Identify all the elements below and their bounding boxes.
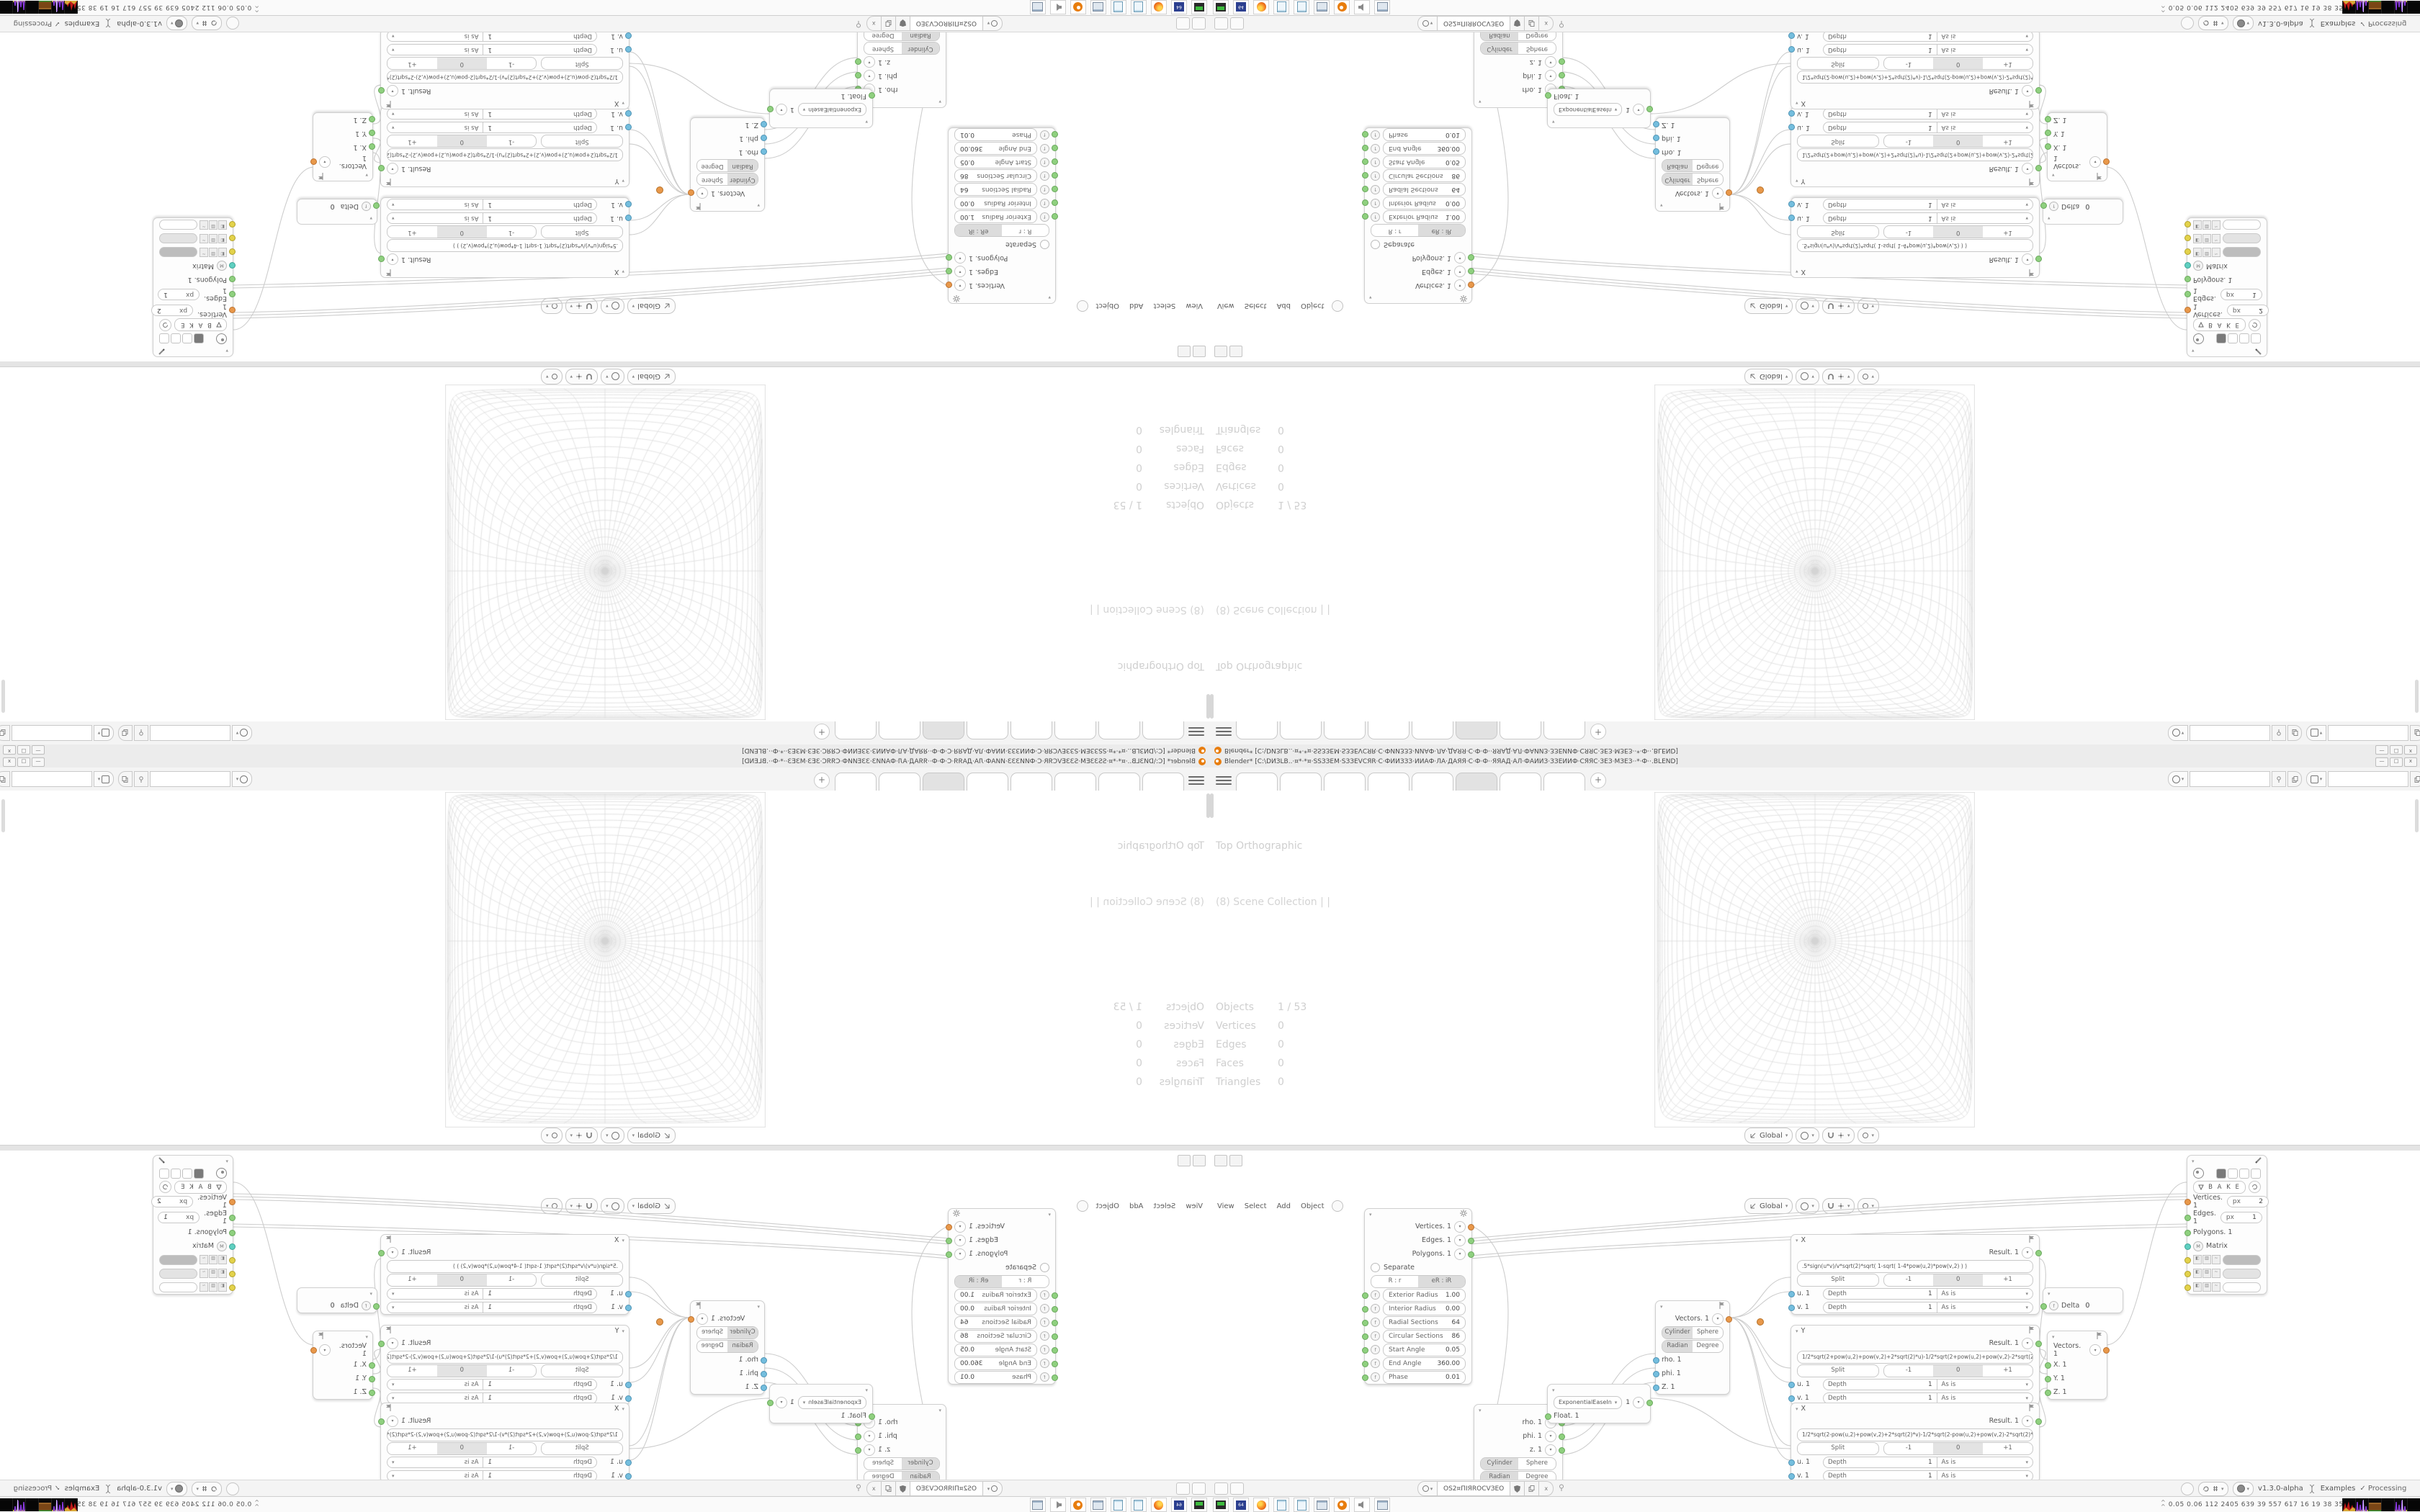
depth-row[interactable]: v. 1Depth1As is▾ xyxy=(1791,32,2039,43)
depth-row[interactable]: u. 1Depth1As is▾ xyxy=(381,1377,629,1391)
node-header[interactable]: ▾ xyxy=(949,1209,1055,1220)
node-header[interactable]: ▾X xyxy=(1791,266,2039,277)
number-field[interactable]: Circular Sections86 xyxy=(954,170,1037,183)
socket-green[interactable] xyxy=(2040,203,2047,210)
split-row[interactable]: Split-10+1 xyxy=(1791,225,2039,239)
pin-icon[interactable] xyxy=(1558,1484,1565,1493)
gizmo-dropdown[interactable]: ▾ xyxy=(1796,1128,1819,1143)
viewport-area[interactable]: Top Orthographic (8) Scene Collection | … xyxy=(1210,367,2420,721)
menu-item-view[interactable]: View xyxy=(1217,1202,1234,1210)
segmented-row[interactable]: CylinderSphere xyxy=(691,173,764,186)
socket-blue[interactable] xyxy=(1653,149,1659,156)
notepad-icon[interactable] xyxy=(1273,1498,1289,1512)
socket-orange[interactable] xyxy=(229,307,236,313)
segmented-row[interactable]: RadianDegree xyxy=(691,159,764,173)
computer-icon[interactable] xyxy=(1191,0,1207,14)
delta-node[interactable]: ▾fDelta0 xyxy=(2043,199,2123,225)
nodetree-icon[interactable]: ▾ xyxy=(1417,1481,1438,1496)
proportional-dropdown[interactable]: ▾ xyxy=(1857,298,1879,314)
color-swatch-row[interactable]: ◧▥~ xyxy=(153,246,233,259)
menu-item-object[interactable]: Object xyxy=(1095,1202,1119,1210)
id-name-field[interactable] xyxy=(2190,725,2270,741)
torus-node[interactable]: ▾Vertices. 1▾Edges. 1▾Polygons. 1▾Separa… xyxy=(948,1208,1056,1385)
notepad-icon[interactable] xyxy=(1273,0,1289,14)
socket-orange[interactable] xyxy=(1468,282,1474,289)
formula-y1-node[interactable]: ▾YResult. 1▾1/2*sqrt(2+pow(u,2)+pow(v,2)… xyxy=(1791,107,2040,187)
socket-green[interactable] xyxy=(378,1250,385,1256)
socket-yellow[interactable] xyxy=(229,249,236,256)
split-row[interactable]: Split-10+1 xyxy=(381,225,629,239)
socket-green[interactable] xyxy=(369,117,375,123)
socket-yellow[interactable] xyxy=(2184,235,2191,242)
socket-green[interactable] xyxy=(378,256,385,263)
easing-node[interactable]: ▾ExponentialEaseIn▾1▾Float. 1 xyxy=(1547,1384,1651,1423)
socket-green[interactable] xyxy=(373,1303,380,1310)
notepad-icon[interactable] xyxy=(1111,1498,1126,1512)
formula-y1-node[interactable]: ▾YResult. 1▾1/2*sqrt(2+pow(u,2)+pow(v,2)… xyxy=(380,1325,629,1405)
socket-orange[interactable] xyxy=(229,1199,236,1205)
notepad-icon[interactable] xyxy=(1294,1498,1309,1512)
computer-icon[interactable] xyxy=(1213,0,1229,14)
combine-node[interactable]: ▾Vectors. 1▾X. 1Y. 1Z. 1 xyxy=(313,112,373,181)
socket-green[interactable] xyxy=(378,166,385,172)
node-editor-area[interactable]: ViewSelectAddObject Global▾▾▾▾ ▾Vertices… xyxy=(1210,32,2420,361)
socket-blue[interactable] xyxy=(625,1459,632,1466)
formula-y1-node[interactable]: ▾YResult. 1▾1/2*sqrt(2+pow(u,2)+pow(v,2)… xyxy=(1791,1325,2040,1405)
color-swatch-row[interactable]: ◧▥~ xyxy=(153,218,233,232)
unlink-button[interactable]: x xyxy=(866,16,881,31)
segmented-row[interactable]: CylinderSphere xyxy=(1656,173,1729,186)
socket-blue[interactable] xyxy=(1788,202,1795,208)
socket-green[interactable] xyxy=(1052,132,1058,138)
socket-blue[interactable] xyxy=(625,1473,632,1480)
formula-x2-node[interactable]: ▾XResult. 1▾1/2*sqrt(2-pow(u,2)+pow(v,2)… xyxy=(380,1403,629,1480)
node-header[interactable]: ▾ xyxy=(949,292,1055,303)
node-header[interactable]: ▾ xyxy=(1548,117,1650,127)
proportional-dropdown[interactable]: ▾ xyxy=(541,1128,563,1143)
unlink-button[interactable]: x xyxy=(1539,16,1554,31)
gizmo-dropdown[interactable]: ▾ xyxy=(1796,298,1819,314)
unlink-button[interactable]: x xyxy=(1539,1481,1554,1496)
hamburger-icon[interactable] xyxy=(1188,773,1204,788)
depth-row[interactable]: v. 1Depth1As is▾ xyxy=(381,1300,629,1314)
easing-row[interactable]: ExponentialEaseIn▾1▾ xyxy=(770,1395,872,1409)
pin-icon[interactable] xyxy=(2272,771,2286,787)
workspace-tab-2[interactable] xyxy=(1280,721,1322,739)
socket-yellow[interactable] xyxy=(229,222,236,228)
snap-magnet-dropdown[interactable]: ▾ xyxy=(565,1128,599,1143)
checkbox-row[interactable]: Separate xyxy=(949,238,1055,251)
workspace-tab-3[interactable] xyxy=(1054,773,1096,791)
socket-green[interactable] xyxy=(1052,1333,1058,1340)
socket-orange[interactable] xyxy=(1468,1224,1474,1230)
close-button[interactable]: x xyxy=(2404,746,2417,755)
unlink-button[interactable]: x xyxy=(866,1481,881,1496)
snap-magnet-dropdown[interactable]: ▾ xyxy=(1822,369,1855,384)
snap-magnet-dropdown[interactable]: ▾ xyxy=(565,1198,599,1214)
nodetree-icon[interactable]: ▾ xyxy=(982,1481,1003,1496)
window-icon[interactable] xyxy=(1030,0,1046,14)
socket-green[interactable] xyxy=(1362,1347,1368,1354)
socket-blue[interactable] xyxy=(1653,135,1659,142)
footer-view-toggles[interactable] xyxy=(1176,1482,1206,1495)
socket-orange[interactable] xyxy=(688,1316,694,1323)
socket-orange[interactable] xyxy=(1726,190,1732,197)
menu-item-object[interactable]: Object xyxy=(1301,302,1325,310)
id-name-field[interactable] xyxy=(12,725,92,741)
socket-green[interactable] xyxy=(1362,214,1368,220)
orientation-dropdown[interactable]: Global▾ xyxy=(627,1128,676,1143)
number-field[interactable]: End Angle360.00 xyxy=(954,1357,1037,1370)
speaker-icon[interactable] xyxy=(1050,1498,1066,1512)
checkbox-row[interactable]: Separate xyxy=(1365,1261,1471,1274)
editor-mini-toggles[interactable] xyxy=(1214,1155,1242,1166)
viewport-scrollbar[interactable] xyxy=(2415,680,2419,713)
image-icon[interactable]: ▾ xyxy=(94,725,114,741)
socket-blue[interactable] xyxy=(1653,1385,1659,1391)
orientation-dropdown[interactable]: Global▾ xyxy=(1744,369,1793,384)
minimize-button[interactable]: — xyxy=(32,746,45,755)
workspace-tab-6[interactable] xyxy=(1456,773,1497,791)
depth-row[interactable]: v. 1Depth1As is▾ xyxy=(1791,1300,2039,1314)
status-circle-icon[interactable] xyxy=(226,1482,239,1495)
gizmo-dropdown[interactable]: ▾ xyxy=(601,1198,624,1214)
display-toggles-row[interactable] xyxy=(153,1166,233,1180)
examples-menu[interactable]: Examples xyxy=(2321,1485,2356,1493)
image-icon[interactable]: ▾ xyxy=(2306,771,2326,787)
number-field[interactable]: Start Angle0.05 xyxy=(1383,156,1466,169)
formula-x2-node[interactable]: ▾XResult. 1▾1/2*sqrt(2-pow(u,2)+pow(v,2)… xyxy=(1791,32,2040,109)
workspace-tab-6[interactable] xyxy=(923,773,964,791)
shield-icon[interactable] xyxy=(895,16,910,31)
number-field[interactable]: Phase0.01 xyxy=(954,1371,1037,1384)
socket-green[interactable] xyxy=(1362,186,1368,193)
add-tab-button[interactable]: + xyxy=(1590,773,1606,788)
firefox-icon[interactable] xyxy=(1253,0,1269,14)
socket-blue[interactable] xyxy=(625,33,632,40)
workspace-tab-4[interactable] xyxy=(1010,773,1052,791)
node-header[interactable]: ▾ xyxy=(691,200,764,211)
proportional-dropdown[interactable]: ▾ xyxy=(1857,1128,1879,1143)
floppy64-icon[interactable]: 64 xyxy=(1233,0,1249,14)
socket-cyan[interactable] xyxy=(229,263,236,269)
depth-row[interactable]: u. 1Depth1As is▾ xyxy=(1791,1377,2039,1391)
node-header[interactable]: ▾X xyxy=(381,1403,629,1414)
vector-out-node[interactable]: ▾Vectors. 1▾CylinderSphereRadianDegreerh… xyxy=(1655,1300,1730,1395)
color-swatch-row[interactable]: ◧▥~ xyxy=(153,1266,233,1280)
workspace-tab-8[interactable] xyxy=(835,721,877,739)
socket-green[interactable] xyxy=(2035,1250,2042,1256)
socket-blue[interactable] xyxy=(1788,1395,1795,1402)
number-field[interactable]: Radial Sections64 xyxy=(1383,1316,1466,1329)
processing-checkbox[interactable]: ✓ Processing xyxy=(2359,1485,2406,1493)
depth-row[interactable]: v. 1Depth1As is▾ xyxy=(1791,1469,2039,1480)
maximize-button[interactable]: □ xyxy=(2390,746,2403,755)
node-editor-area[interactable]: ViewSelectAddObject Global▾▾▾▾ ▾Vertices… xyxy=(0,32,1210,361)
socket-green[interactable] xyxy=(1052,1292,1058,1299)
node-header[interactable]: ▾X xyxy=(1791,98,2039,109)
socket-green[interactable] xyxy=(378,1341,385,1347)
blender-icon[interactable] xyxy=(1334,0,1350,14)
socket-green[interactable] xyxy=(229,291,236,297)
socket-green[interactable] xyxy=(1052,214,1058,220)
segmented-row[interactable]: RadianDegree xyxy=(1656,1339,1729,1353)
number-field[interactable]: End Angle360.00 xyxy=(1383,143,1466,156)
segmented-row[interactable]: RadianDegree xyxy=(858,1470,946,1480)
depth-row[interactable]: v. 1Depth1As is▾ xyxy=(381,198,629,212)
computer-icon[interactable] xyxy=(1213,1498,1229,1512)
workspace-tab-5[interactable] xyxy=(967,773,1008,791)
socket-cyan[interactable] xyxy=(2184,1243,2191,1250)
socket-orange[interactable] xyxy=(2103,158,2110,165)
processing-checkbox[interactable]: ✓ Processing xyxy=(2359,19,2406,27)
socket-yellow[interactable] xyxy=(229,1284,236,1291)
color-swatch-row[interactable]: ◧▥~ xyxy=(153,1253,233,1266)
reroute-dot[interactable] xyxy=(1757,1318,1764,1326)
number-field[interactable]: Phase0.01 xyxy=(954,129,1037,142)
depth-row[interactable]: u. 1Depth1As is▾ xyxy=(381,43,629,57)
window-icon[interactable] xyxy=(1090,0,1106,14)
blender-icon[interactable] xyxy=(1070,1498,1086,1512)
socket-blue[interactable] xyxy=(761,135,767,142)
menu-item-select[interactable]: Select xyxy=(1153,302,1175,310)
number-field[interactable]: Radial Sections64 xyxy=(954,1316,1037,1329)
workspace-tab-4[interactable] xyxy=(1368,721,1410,739)
segmented-row[interactable]: RadianDegree xyxy=(1474,1470,1562,1480)
segmented-row[interactable]: R : reR : iR xyxy=(949,1274,1055,1288)
combine-node[interactable]: ▾Vectors. 1▾X. 1Y. 1Z. 1 xyxy=(313,1331,373,1400)
socket-blue[interactable] xyxy=(761,1371,767,1377)
pin-icon[interactable] xyxy=(1558,19,1565,28)
nodetree-name-field[interactable]: OS2¤ПIЯROCVЗEO xyxy=(1438,16,1510,31)
reroute-dot[interactable] xyxy=(656,186,663,194)
number-field[interactable]: End Angle360.00 xyxy=(954,143,1037,156)
socket-green[interactable] xyxy=(1362,173,1368,179)
area-handle[interactable] xyxy=(1206,793,1210,818)
socket-cyan[interactable] xyxy=(229,1243,236,1250)
node-header[interactable]: ▾X xyxy=(381,1235,629,1246)
window-icon[interactable] xyxy=(1090,1498,1106,1512)
hamburger-icon[interactable] xyxy=(1188,724,1204,739)
socket-green[interactable] xyxy=(946,1238,952,1244)
socket-blue[interactable] xyxy=(1788,1473,1795,1480)
socket-yellow[interactable] xyxy=(229,235,236,242)
socket-green[interactable] xyxy=(1362,132,1368,138)
area-handle[interactable] xyxy=(1210,793,1214,818)
socket-green[interactable] xyxy=(946,269,952,275)
menu-item-view[interactable]: View xyxy=(1217,302,1234,310)
node-header[interactable]: ▾ xyxy=(2043,1288,2123,1299)
number-field[interactable]: Exterior Radius1.00 xyxy=(1383,1289,1466,1302)
socket-green[interactable] xyxy=(2045,1390,2051,1396)
segmented-row[interactable]: CylinderSphere xyxy=(691,1326,764,1339)
theme-group[interactable]: ▾ xyxy=(166,17,188,31)
bake-row[interactable]: B A K E xyxy=(2187,318,2267,332)
socket-blue[interactable] xyxy=(761,149,767,156)
hamburger-icon[interactable] xyxy=(1216,724,1232,739)
easing-node[interactable]: ▾ExponentialEaseIn▾1▾Float. 1 xyxy=(769,1384,873,1423)
formula-row[interactable]: 1/2*sqrt(2-pow(u,2)+pow(v,2)+2*sqrt(2)*v… xyxy=(381,1428,629,1441)
node-header[interactable]: ▾ xyxy=(2043,213,2123,224)
number-field[interactable]: Circular Sections86 xyxy=(1383,1330,1466,1343)
socket-green[interactable] xyxy=(1052,1320,1058,1326)
node-header[interactable]: ▾X xyxy=(381,266,629,277)
socket-green[interactable] xyxy=(2040,1303,2047,1310)
node-header[interactable]: ▾ xyxy=(1548,1385,1650,1395)
snap-magnet-dropdown[interactable]: ▾ xyxy=(1822,1198,1855,1214)
socket-blue[interactable] xyxy=(1653,122,1659,128)
workspace-tab-5[interactable] xyxy=(967,721,1008,739)
theme-group[interactable]: ▾ xyxy=(166,1482,188,1496)
node-header[interactable]: ▾ xyxy=(770,117,872,127)
copy-icon[interactable] xyxy=(881,16,895,31)
number-field[interactable]: Radial Sections64 xyxy=(1383,184,1466,197)
bake-row[interactable]: B A K E xyxy=(153,318,233,332)
orientation-dropdown[interactable]: Global▾ xyxy=(1744,1198,1793,1214)
socket-blue[interactable] xyxy=(625,47,632,53)
node-editor-area[interactable]: ViewSelectAddObject Global▾▾▾▾ ▾Vertices… xyxy=(0,1151,1210,1480)
socket-green[interactable] xyxy=(2035,88,2042,94)
update-group[interactable]: ▾ xyxy=(192,1482,222,1496)
tray-expand-icon[interactable]: ^^ xyxy=(2161,3,2166,12)
socket-green[interactable] xyxy=(369,130,375,137)
socket-green[interactable] xyxy=(369,144,375,150)
workspace-tab-1[interactable] xyxy=(1142,721,1184,739)
reroute-dot[interactable] xyxy=(1757,186,1764,194)
maximize-button[interactable]: □ xyxy=(17,757,30,767)
copy-icon[interactable] xyxy=(2287,771,2302,787)
copy-icon[interactable] xyxy=(1525,16,1539,31)
socket-green[interactable] xyxy=(229,1230,236,1236)
nodetree-name-field[interactable]: OS2¤ПIЯROCVЗEO xyxy=(910,1481,982,1496)
socket-green[interactable] xyxy=(1052,1347,1058,1354)
socket-green[interactable] xyxy=(855,1447,861,1454)
easing-node[interactable]: ▾ExponentialEaseIn▾1▾Float. 1 xyxy=(769,89,873,128)
socket-green[interactable] xyxy=(1545,1413,1551,1420)
close-button[interactable]: x xyxy=(3,746,16,755)
pin-icon[interactable] xyxy=(855,19,862,28)
split-row[interactable]: Split-10+1 xyxy=(381,1273,629,1287)
formula-row[interactable]: 1/2*sqrt(2+pow(u,2)+pow(v,2)+2*sqrt(2)*u… xyxy=(381,1350,629,1364)
workspace-tab-7[interactable] xyxy=(1500,773,1541,791)
split-row[interactable]: Split-10+1 xyxy=(1791,1273,2039,1287)
socket-yellow[interactable] xyxy=(2184,249,2191,256)
node-header[interactable]: ▾ xyxy=(1656,1301,1729,1312)
menu-item-select[interactable]: Select xyxy=(1153,1202,1175,1210)
add-tab-button[interactable]: + xyxy=(1590,724,1606,739)
orientation-dropdown[interactable]: Global▾ xyxy=(1744,298,1793,314)
menu-item-select[interactable]: Select xyxy=(1245,1202,1267,1210)
socket-green[interactable] xyxy=(1468,269,1474,275)
orientation-dropdown[interactable]: Global▾ xyxy=(627,1198,676,1214)
number-field[interactable]: Interior Radius0.00 xyxy=(954,1302,1037,1315)
segmented-row[interactable]: R : reR : iR xyxy=(949,224,1055,238)
pin-icon[interactable] xyxy=(134,771,148,787)
workspace-tab-1[interactable] xyxy=(1142,773,1184,791)
workspace-tab-4[interactable] xyxy=(1368,773,1410,791)
socket-green[interactable] xyxy=(2035,166,2042,172)
floppy64-icon[interactable]: 64 xyxy=(1233,1498,1249,1512)
socket-green[interactable] xyxy=(1646,107,1653,113)
mode-circle-icon[interactable] xyxy=(1332,1200,1343,1212)
easing-row[interactable]: ExponentialEaseIn▾1▾ xyxy=(770,103,872,117)
gizmo-dropdown[interactable]: ▾ xyxy=(1796,1198,1819,1214)
socket-yellow[interactable] xyxy=(2184,1257,2191,1264)
formula-x2-node[interactable]: ▾XResult. 1▾1/2*sqrt(2-pow(u,2)+pow(v,2)… xyxy=(1791,1403,2040,1480)
viewer-node[interactable]: ▾B A K EVertices. 1px2Edges. 1px1Polygon… xyxy=(2187,1155,2267,1295)
node-header[interactable]: ▾X xyxy=(1791,1235,2039,1246)
workspace-tab-6[interactable] xyxy=(1456,721,1497,739)
formula-row[interactable]: 1/2*sqrt(2-pow(u,2)+pow(v,2)+2*sqrt(2)*v… xyxy=(1791,1428,2039,1441)
add-tab-button[interactable]: + xyxy=(814,724,830,739)
workspace-tab-8[interactable] xyxy=(1543,773,1585,791)
footer-view-toggles[interactable] xyxy=(1214,1482,1244,1495)
close-button[interactable]: x xyxy=(3,757,16,767)
shield-icon[interactable] xyxy=(1510,16,1525,31)
workspace-tab-2[interactable] xyxy=(1098,773,1140,791)
depth-row[interactable]: u. 1Depth1As is▾ xyxy=(381,1455,629,1469)
formula-row[interactable]: .5*sign(u*v)/v*sqrt(2)*sqrt( 1-sqrt( 1-4… xyxy=(381,239,629,253)
menu-item-add[interactable]: Add xyxy=(1129,1202,1143,1210)
id-name-field[interactable] xyxy=(12,771,92,787)
node-header[interactable]: ▾ xyxy=(313,1331,372,1342)
socket-green[interactable] xyxy=(1559,73,1565,79)
socket-green[interactable] xyxy=(229,1215,236,1221)
orientation-dropdown[interactable]: Global▾ xyxy=(1744,1128,1793,1143)
socket-green[interactable] xyxy=(869,1413,875,1420)
socket-green[interactable] xyxy=(2035,1341,2042,1347)
socket-blue[interactable] xyxy=(625,215,632,222)
socket-blue[interactable] xyxy=(1788,111,1795,117)
nodetree-icon[interactable]: ▾ xyxy=(1417,16,1438,31)
socket-blue[interactable] xyxy=(625,1291,632,1297)
pin-icon[interactable] xyxy=(855,1484,862,1493)
segmented-row[interactable]: RadianDegree xyxy=(1656,159,1729,173)
area-handle[interactable] xyxy=(1210,694,1214,719)
socket-green[interactable] xyxy=(2045,1362,2051,1369)
area-handle[interactable] xyxy=(1206,694,1210,719)
socket-green[interactable] xyxy=(2045,130,2051,137)
copy-icon[interactable] xyxy=(0,771,10,787)
socket-green[interactable] xyxy=(1362,145,1368,152)
number-field[interactable]: Exterior Radius1.00 xyxy=(954,211,1037,224)
footer-view-toggles[interactable] xyxy=(1176,17,1206,30)
window-icon[interactable] xyxy=(1374,0,1390,14)
socket-yellow[interactable] xyxy=(229,1271,236,1277)
number-field[interactable]: Exterior Radius1.00 xyxy=(954,1289,1037,1302)
status-circle-icon[interactable] xyxy=(2181,1482,2194,1495)
socket-green[interactable] xyxy=(1362,1333,1368,1340)
editor-mini-toggles[interactable] xyxy=(1214,346,1242,357)
close-button[interactable]: x xyxy=(2404,757,2417,767)
socket-orange[interactable] xyxy=(946,1224,952,1230)
maximize-button[interactable]: □ xyxy=(17,746,30,755)
socket-blue[interactable] xyxy=(625,202,632,208)
material-icon[interactable]: ▾ xyxy=(2168,771,2188,787)
update-group[interactable]: ▾ xyxy=(2198,17,2228,31)
proportional-dropdown[interactable]: ▾ xyxy=(1857,1198,1879,1214)
segmented-row[interactable]: CylinderSphere xyxy=(1656,1326,1729,1339)
socket-blue[interactable] xyxy=(1788,215,1795,222)
formula-x1-node[interactable]: ▾XResult. 1▾.5*sign(u*v)/v*sqrt(2)*sqrt(… xyxy=(380,1234,629,1315)
socket-green[interactable] xyxy=(1468,1238,1474,1244)
copy-icon[interactable] xyxy=(118,725,133,741)
viewport-scrollbar[interactable] xyxy=(1,799,5,832)
shield-icon[interactable] xyxy=(895,1481,910,1496)
notepad-icon[interactable] xyxy=(1131,1498,1147,1512)
orientation-dropdown[interactable]: Global▾ xyxy=(627,298,676,314)
examples-menu[interactable]: Examples xyxy=(65,1485,100,1493)
